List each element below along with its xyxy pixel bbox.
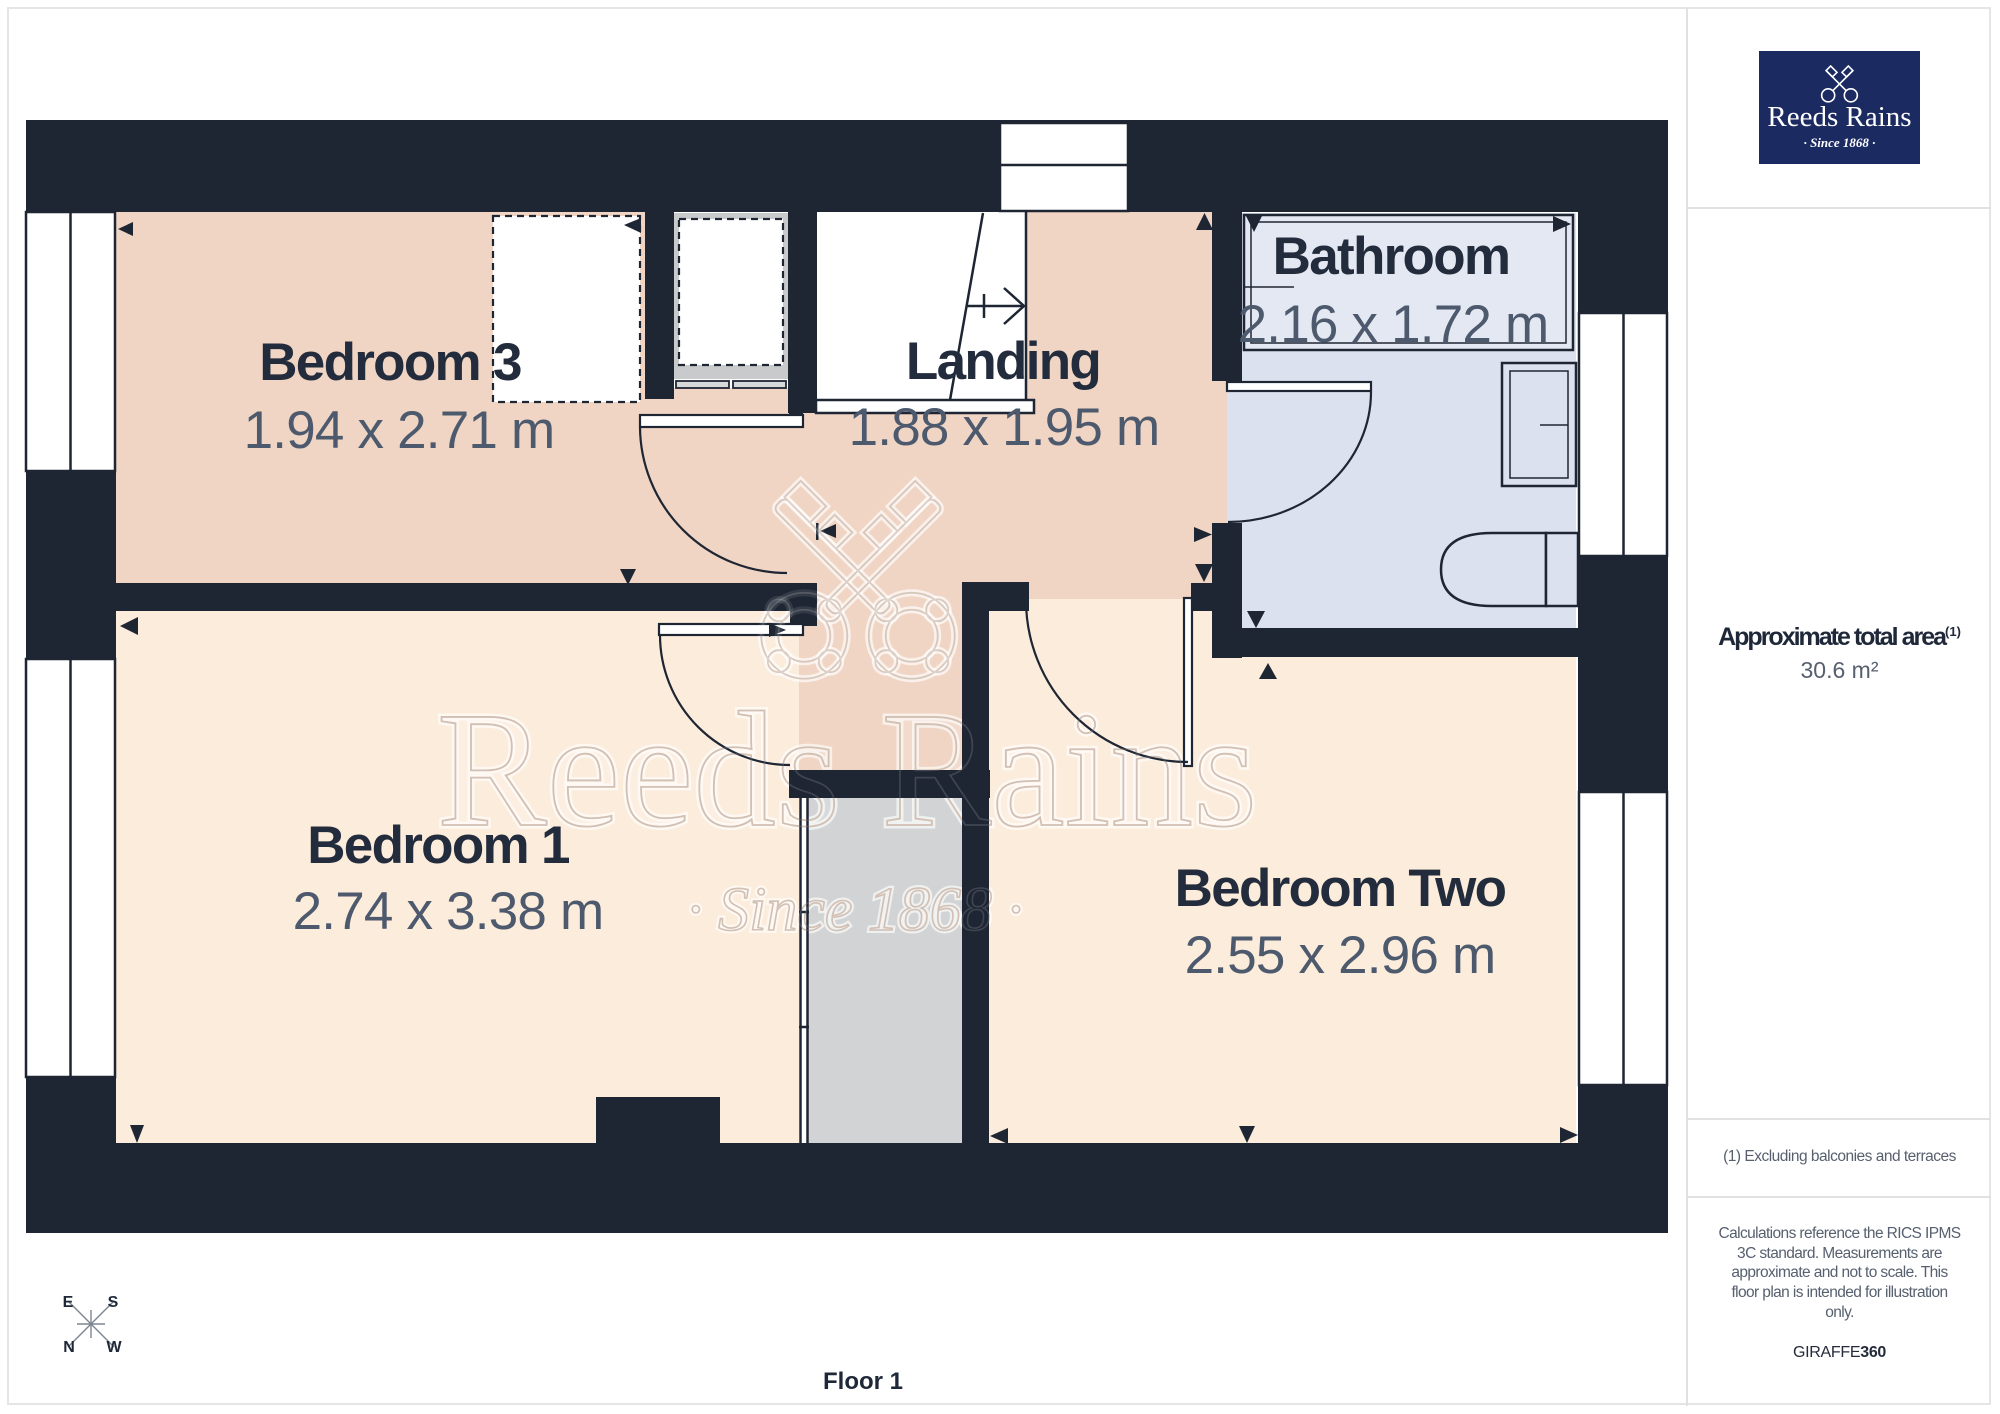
svg-text:Bedroom 1: Bedroom 1 [307,816,569,875]
svg-text:1.88 x 1.95 m: 1.88 x 1.95 m [849,398,1160,457]
svg-text:Bedroom Two: Bedroom Two [1175,859,1506,918]
svg-text:1.94 x 2.71 m: 1.94 x 2.71 m [244,401,555,460]
svg-text:· Since 1868 ·: · Since 1868 · [687,876,1023,944]
svg-text:Bedroom 3: Bedroom 3 [259,333,521,392]
svg-text:2.16 x 1.72 m: 2.16 x 1.72 m [1238,295,1549,354]
svg-text:Landing: Landing [906,332,1100,391]
svg-text:E: E [63,1294,74,1311]
svg-text:Bathroom: Bathroom [1273,227,1510,286]
svg-text:S: S [108,1294,119,1311]
svg-text:W: W [106,1339,122,1356]
svg-text:2.55 x 2.96 m: 2.55 x 2.96 m [1185,926,1496,985]
svg-text:2.74 x 3.38 m: 2.74 x 3.38 m [293,882,604,941]
svg-text:N: N [63,1339,75,1356]
